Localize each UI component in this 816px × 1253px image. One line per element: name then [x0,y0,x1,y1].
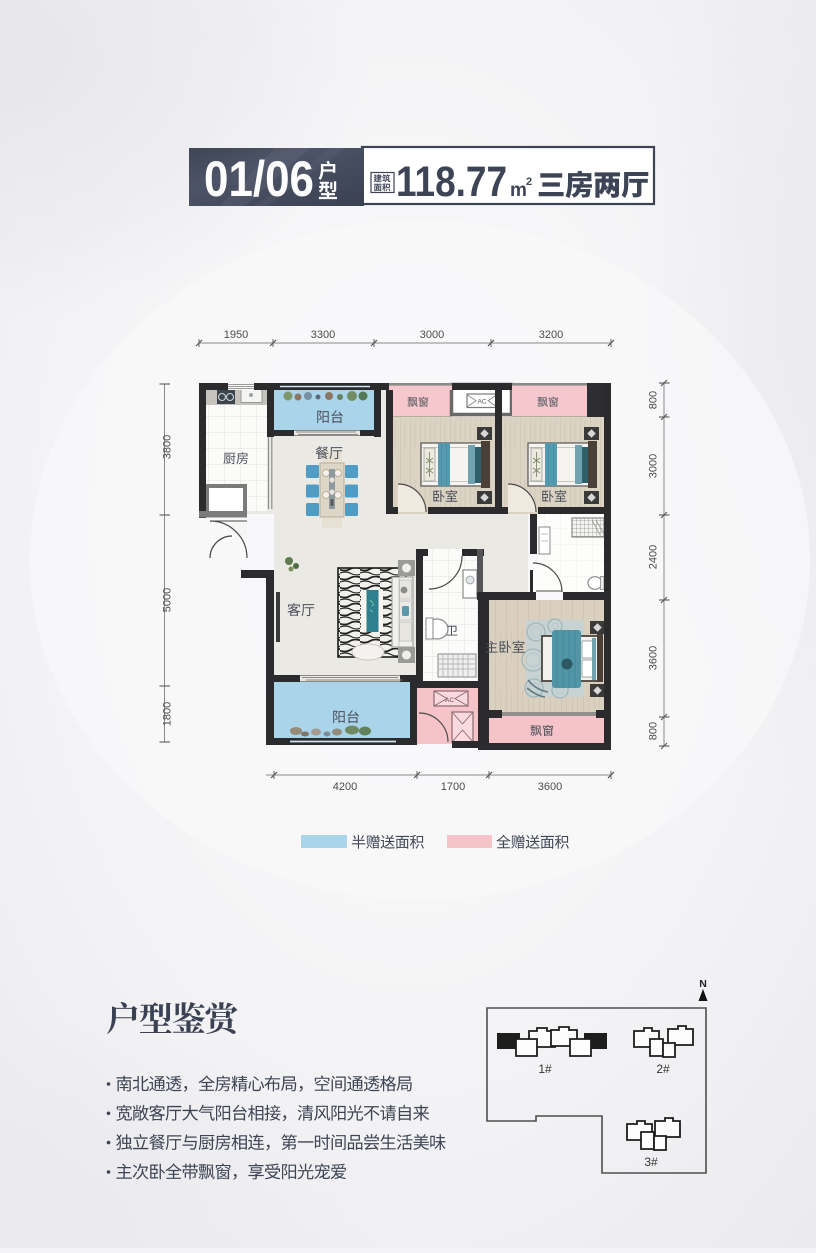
svg-text:01/06: 01/06 [204,151,314,207]
svg-text:3600: 3600 [538,781,562,793]
svg-text:AC: AC [478,399,487,406]
svg-text:3600: 3600 [648,646,660,670]
svg-text:118.77: 118.77 [396,158,507,206]
svg-text:1#: 1# [538,1062,552,1076]
svg-text:1700: 1700 [441,781,465,793]
svg-text:2#: 2# [656,1062,670,1076]
svg-text:m: m [510,180,527,201]
svg-text:2400: 2400 [648,545,660,569]
svg-text:3800: 3800 [162,435,174,459]
svg-text:2: 2 [526,176,532,188]
svg-text:3#: 3# [644,1155,658,1169]
svg-text:4200: 4200 [333,781,357,793]
svg-text:5000: 5000 [162,588,174,612]
svg-text:AC: AC [445,697,454,704]
svg-text:3000: 3000 [648,454,660,478]
svg-text:3200: 3200 [539,329,563,341]
svg-text:1800: 1800 [162,702,174,726]
svg-text:800: 800 [648,722,660,740]
svg-text:1950: 1950 [224,329,248,341]
svg-text:N: N [699,978,707,990]
svg-text:800: 800 [648,391,660,409]
svg-text:3000: 3000 [420,329,444,341]
svg-text:3300: 3300 [311,329,335,341]
